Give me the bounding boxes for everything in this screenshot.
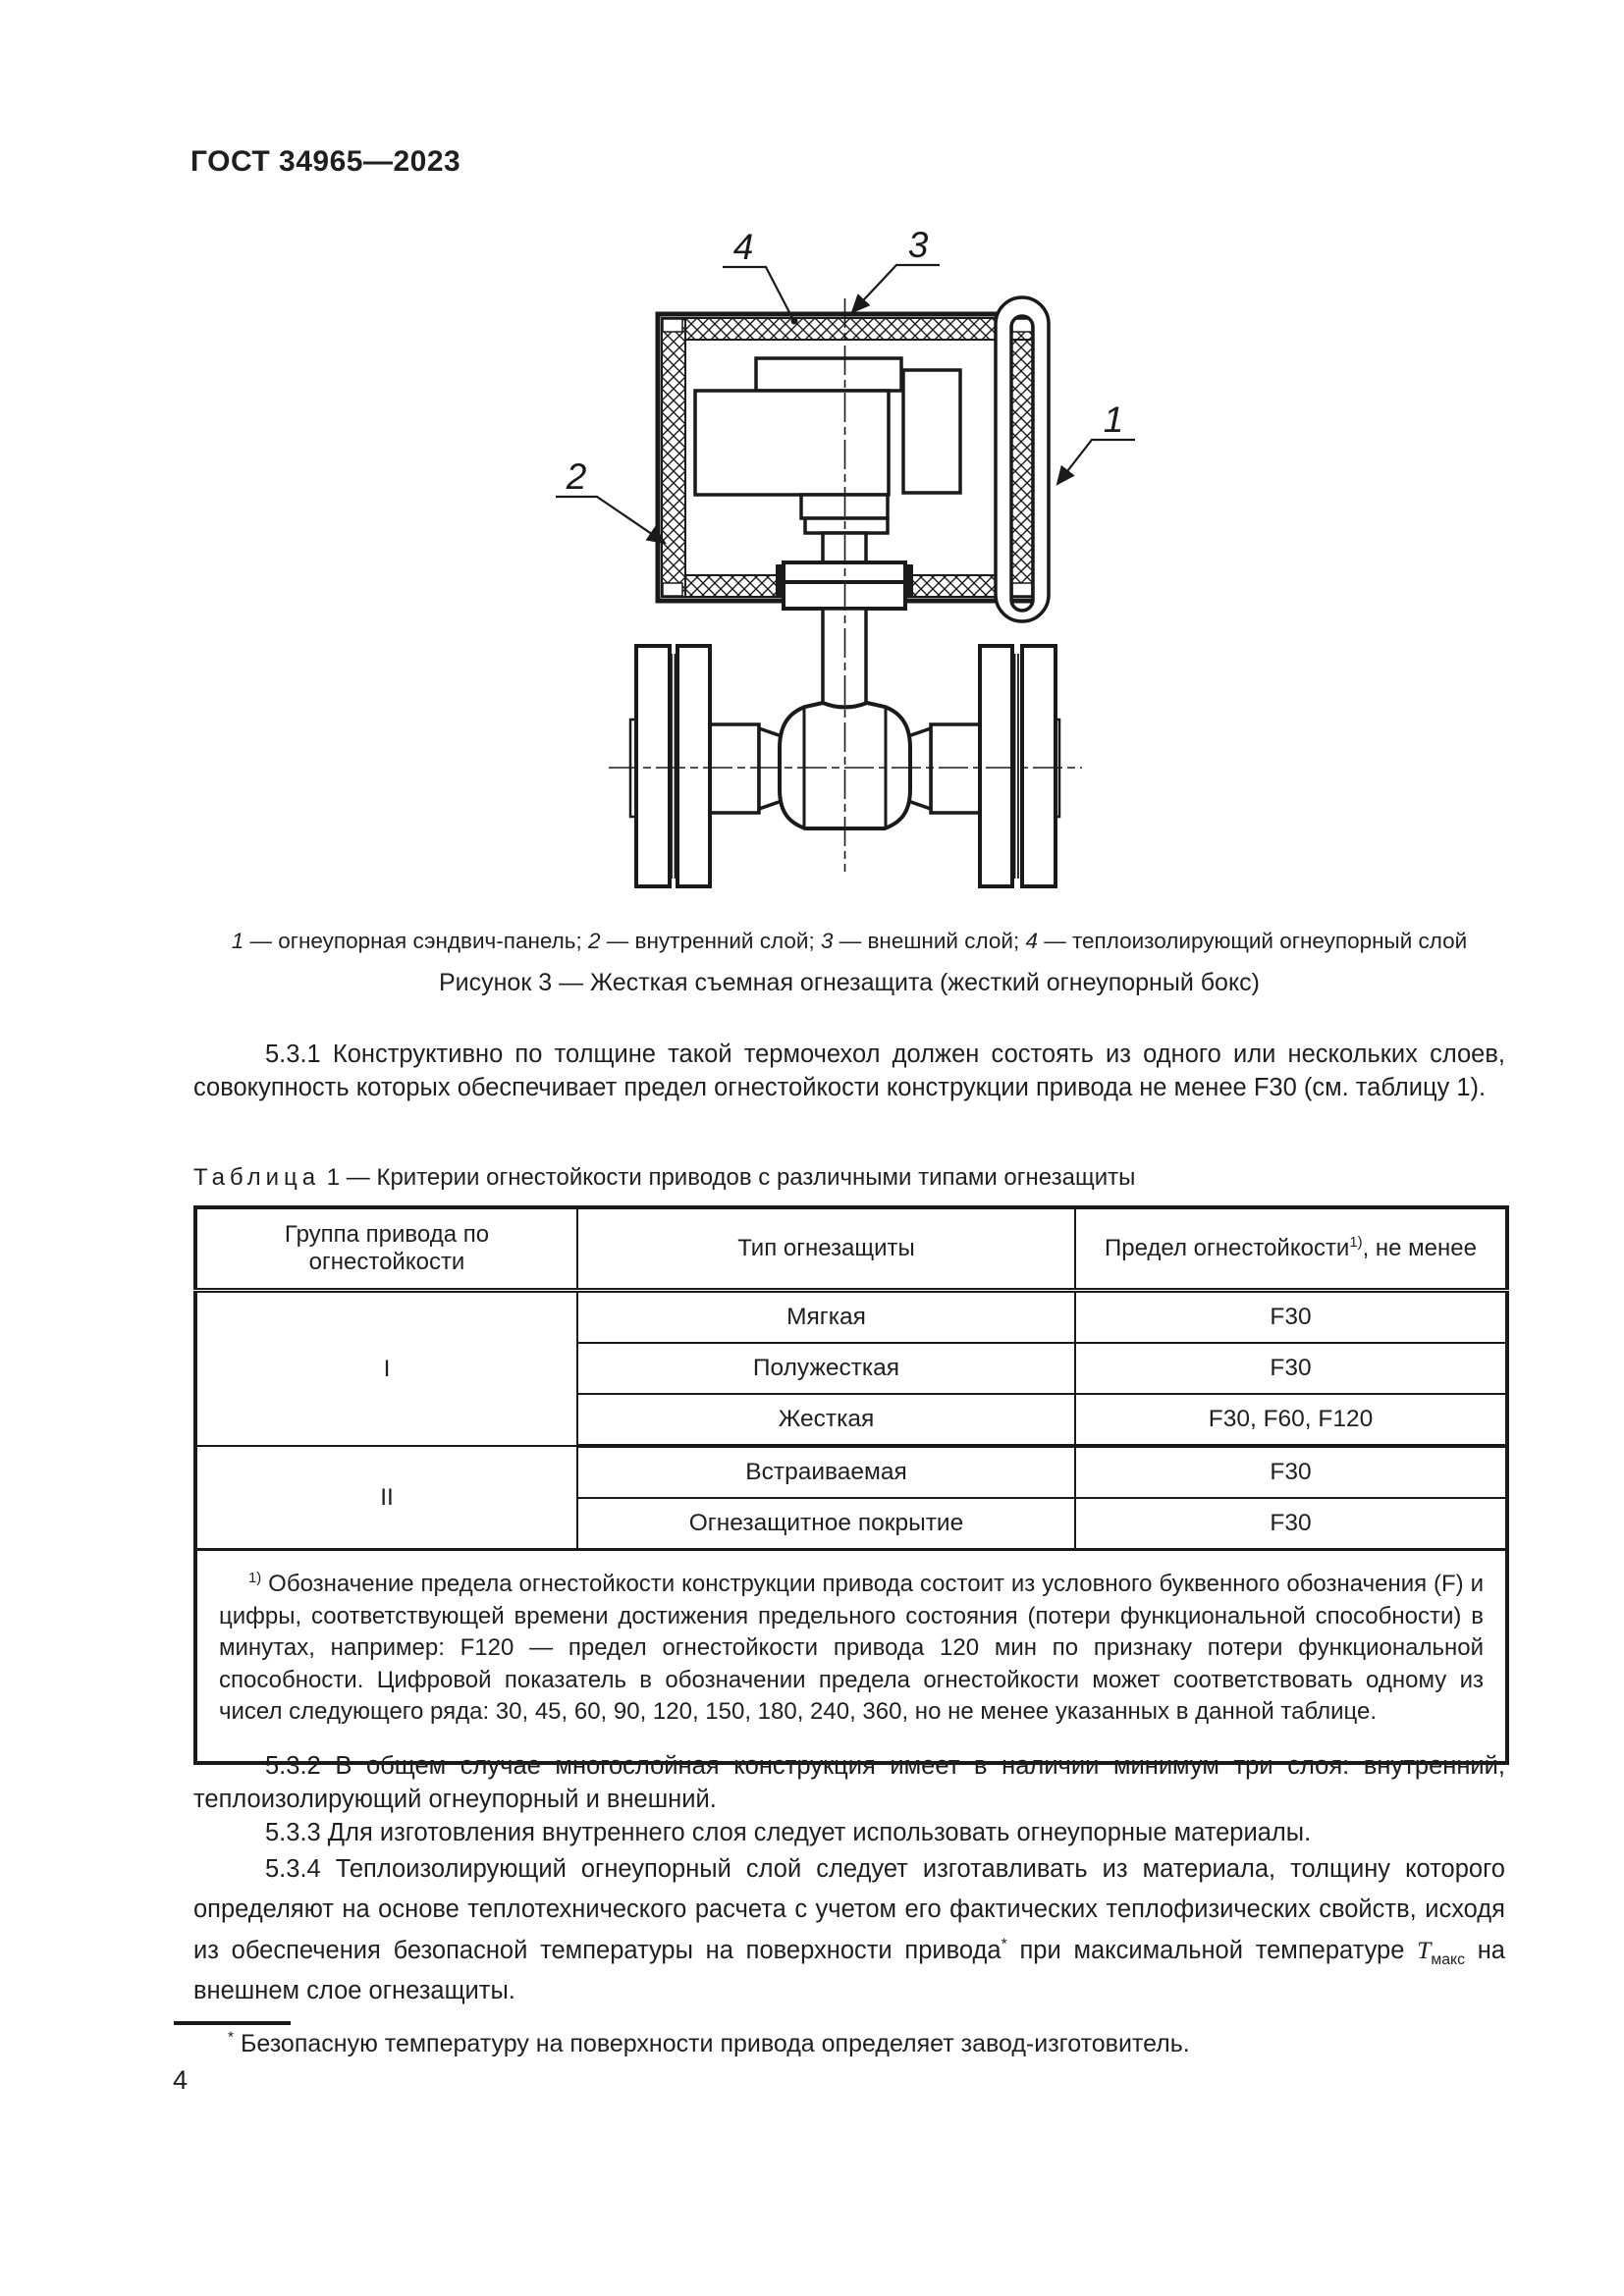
table-header-row: Группа привода по огнестойкости Тип огне…: [195, 1207, 1507, 1291]
group-ii-cell: II: [195, 1446, 577, 1550]
group-i-cell: I: [195, 1291, 577, 1447]
section-5-3-text: 5.3.2 В общем случае многослойная констр…: [193, 1749, 1505, 2011]
callout-3: 3: [908, 225, 929, 265]
table-footnote-row: 1) Обозначение предела огнестойкости кон…: [195, 1550, 1507, 1764]
table-row: I Мягкая F30: [195, 1291, 1507, 1344]
figure-3-drawing: 4 3 1 2: [373, 147, 1159, 942]
callout-4: 4: [733, 227, 754, 267]
figure-caption: Рисунок 3 — Жесткая съемная огнезащита (…: [193, 969, 1505, 997]
col-header-group: Группа привода по огнестойкости: [195, 1207, 577, 1291]
figure-legend: 1 — огнеупорная сэндвич-панель; 2 — внут…: [193, 929, 1505, 954]
paragraph-5-3-4: 5.3.4 Теплоизолирующий огнеупорный слой …: [193, 1849, 1505, 2011]
col-header-type: Тип огнезащиты: [577, 1207, 1075, 1291]
panel-bottom-left: [685, 575, 778, 597]
table-footnote: 1) Обозначение предела огнестойкости кон…: [195, 1550, 1507, 1764]
fire-resistance-table: Группа привода по огнестойкости Тип огне…: [193, 1205, 1509, 1765]
paragraph-5-3-3: 5.3.3 Для изготовления внутреннего слоя …: [193, 1816, 1505, 1849]
callout-2: 2: [566, 456, 587, 497]
panel-left: [662, 318, 685, 597]
panel-top: [685, 318, 1033, 340]
paragraph-5-3-2: 5.3.2 В общем случае многослойная констр…: [193, 1749, 1505, 1816]
table-row: II Встраиваемая F30: [195, 1446, 1507, 1498]
table-caption: Таблица 1 — Критерии огнестойкости приво…: [193, 1164, 1135, 1192]
page-footnote: * Безопасную температуру на поверхности …: [193, 2030, 1505, 2058]
paragraph-5-3-1: 5.3.1 Конструктивно по толщине такой тер…: [193, 1038, 1505, 1104]
footnote-rule: [174, 2021, 291, 2025]
page-number: 4: [173, 2065, 188, 2096]
col-header-limit: Предел огнестойкости1), не менее: [1075, 1207, 1507, 1291]
callout-1: 1: [1104, 400, 1124, 440]
